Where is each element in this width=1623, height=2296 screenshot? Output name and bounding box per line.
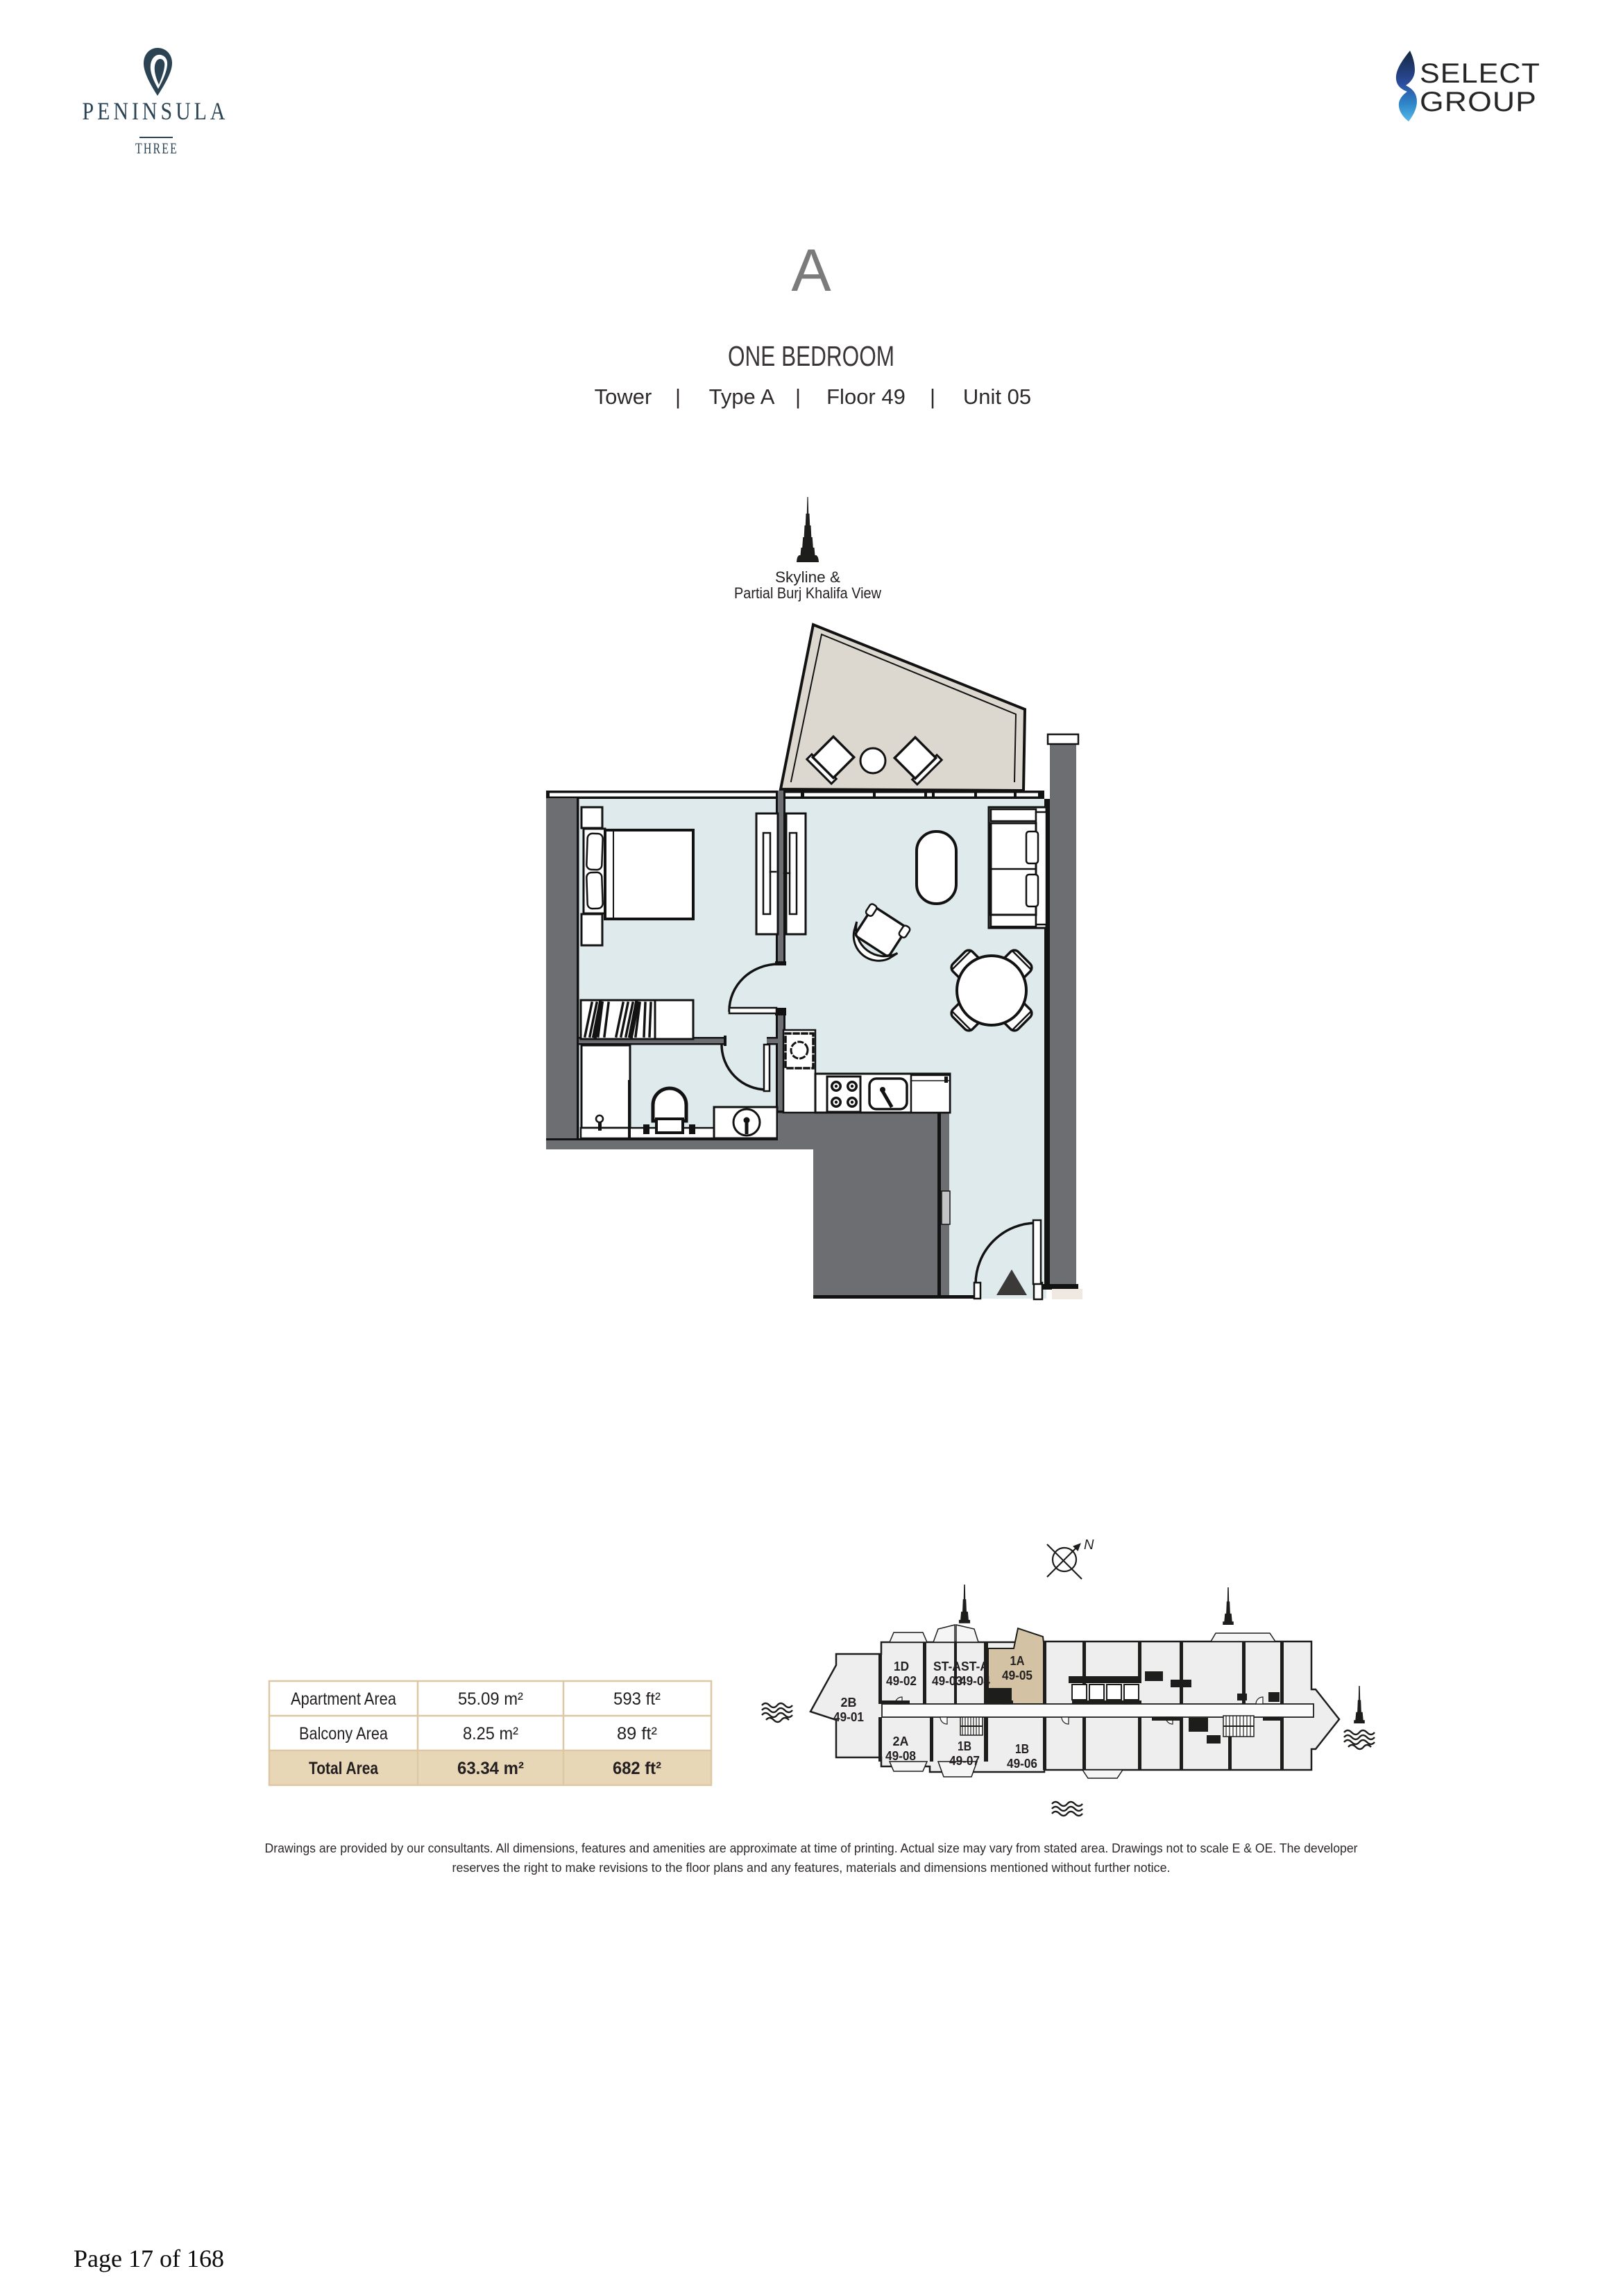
svg-text:A: A xyxy=(791,237,831,304)
svg-text:Apartment Area: Apartment Area xyxy=(291,1689,396,1709)
svg-text:Floor 49: Floor 49 xyxy=(826,385,906,409)
svg-text:49-05: 49-05 xyxy=(1002,1669,1033,1682)
svg-text:N: N xyxy=(1084,1537,1094,1553)
svg-text:ONE BEDROOM: ONE BEDROOM xyxy=(728,340,894,372)
svg-text:49-06: 49-06 xyxy=(1007,1757,1037,1771)
svg-text:PENINSULA: PENINSULA xyxy=(83,97,229,125)
svg-text:49-02: 49-02 xyxy=(886,1674,917,1688)
svg-text:|: | xyxy=(930,385,935,409)
svg-text:|: | xyxy=(795,385,801,409)
svg-text:Skyline &: Skyline & xyxy=(775,568,840,586)
svg-text:1D: 1D xyxy=(894,1660,909,1673)
svg-text:2A: 2A xyxy=(893,1734,909,1748)
svg-text:1B: 1B xyxy=(958,1739,971,1753)
svg-text:Drawings are provided by our c: Drawings are provided by our consultants… xyxy=(265,1841,1358,1855)
svg-text:Total Area: Total Area xyxy=(309,1759,379,1778)
svg-text:1A: 1A xyxy=(1010,1654,1025,1668)
svg-text:682 ft²: 682 ft² xyxy=(613,1759,661,1778)
svg-text:SELECT: SELECT xyxy=(1420,58,1540,89)
svg-text:593 ft²: 593 ft² xyxy=(613,1689,661,1709)
svg-text:49-08: 49-08 xyxy=(885,1749,916,1763)
svg-text:89 ft²: 89 ft² xyxy=(617,1724,657,1744)
svg-text:49-01: 49-01 xyxy=(833,1710,864,1724)
svg-text:8.25 m²: 8.25 m² xyxy=(463,1724,518,1744)
svg-text:Partial Burj Khalifa View: Partial Burj Khalifa View xyxy=(734,584,881,602)
svg-text:Unit 05: Unit 05 xyxy=(963,385,1031,409)
svg-text:Page 17 of 168: Page 17 of 168 xyxy=(74,2245,224,2272)
svg-text:49-07: 49-07 xyxy=(949,1754,980,1768)
svg-text:|: | xyxy=(675,385,681,409)
svg-text:49-04: 49-04 xyxy=(960,1674,990,1688)
svg-text:GROUP: GROUP xyxy=(1420,87,1537,117)
svg-text:Type A: Type A xyxy=(709,385,775,409)
svg-text:55.09 m²: 55.09 m² xyxy=(458,1689,523,1709)
svg-text:Tower: Tower xyxy=(595,385,652,409)
svg-text:49-03: 49-03 xyxy=(932,1674,962,1688)
svg-text:63.34 m²: 63.34 m² xyxy=(457,1759,524,1778)
svg-text:1B: 1B xyxy=(1015,1742,1029,1756)
svg-text:Balcony Area: Balcony Area xyxy=(299,1724,388,1744)
svg-text:reserves the right to make rev: reserves the right to make revisions to … xyxy=(452,1860,1171,1875)
svg-text:ST-A: ST-A xyxy=(933,1660,961,1673)
svg-text:ST-A: ST-A xyxy=(961,1660,989,1673)
svg-text:2B: 2B xyxy=(841,1696,857,1710)
svg-text:THREE: THREE xyxy=(135,140,178,157)
